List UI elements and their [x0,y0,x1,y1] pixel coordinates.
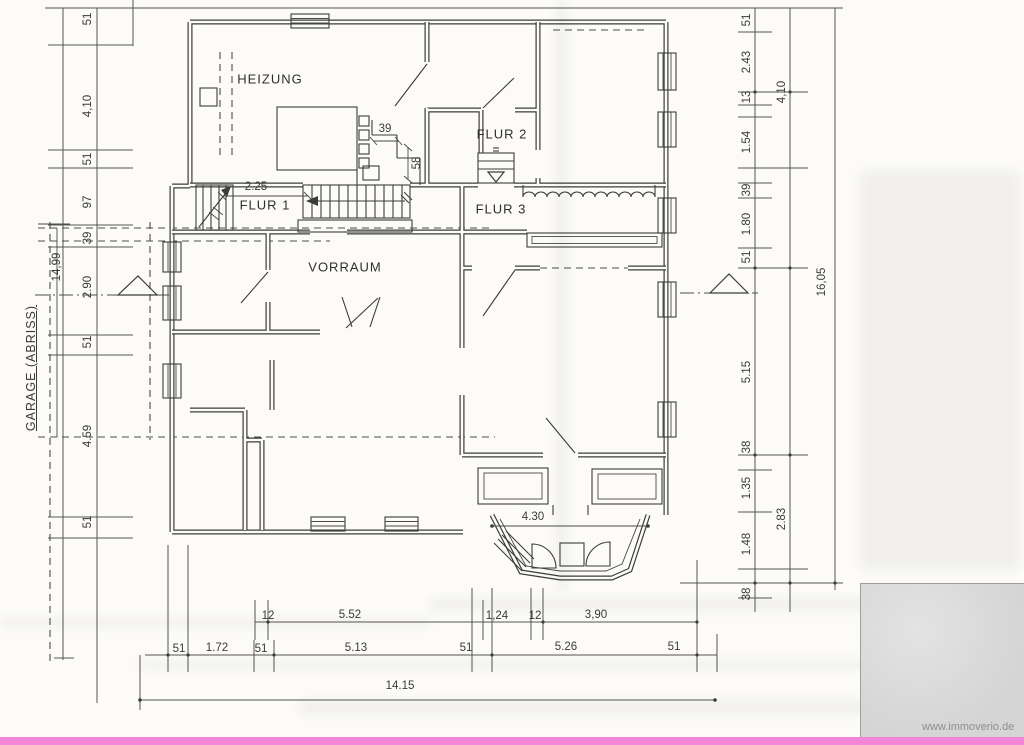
room-label-vorraum: VORRAUM [308,260,381,275]
garage-length-label: 14,99 [51,253,63,282]
dimension-label: 51 [460,642,473,654]
highlight-bar [0,737,1024,745]
dimension-label: 2.25 [245,181,267,193]
doors [241,64,575,453]
interior-walls [172,22,666,530]
flur-steps [478,148,514,183]
porch-bay [490,515,650,578]
dimension-label: 4.30 [522,511,544,523]
dimension-label: 51 [255,643,268,655]
dimension-label: 97 [82,196,94,209]
section-arrows [35,274,758,295]
dimension-label: 1,24 [486,610,508,622]
room-label-heizung: HEIZUNG [237,72,303,87]
dimension-label: 12 [529,610,542,622]
room-label-flur2: FLUR 2 [477,127,528,142]
door-swing-right [586,542,610,566]
scan-gray-patch [860,583,1024,738]
pilaster [200,88,217,106]
dimension-label: 2.83 [776,508,788,530]
scan-smudge [860,170,1020,570]
dimension-label: 4,10 [82,95,94,117]
left-arrow-icon [118,276,157,295]
dimension-label: 2.43 [741,51,753,73]
dimension-label: 13 [741,91,753,104]
dimension-label: 1.80 [741,213,753,235]
dimension-label: 4,10 [776,81,788,103]
dimension-label: 5.13 [345,642,367,654]
room-label-flur3: FLUR 3 [476,202,527,217]
dimension-label: 39 [82,232,94,245]
door-swing-left [532,544,556,568]
scanned-floorplan-page: HEIZUNG FLUR 1 FLUR 2 FLUR 3 VORRAUM GAR… [0,0,1024,745]
dimension-label: 51 [173,643,186,655]
dimension-label: 51 [668,641,681,653]
dimension-label: 2.90 [82,276,94,298]
scan-crease [556,0,568,590]
dimension-label: 38 [741,441,753,454]
main-staircase [298,185,412,232]
dimension-label: 39 [741,184,753,197]
dimension-label: 51 [82,153,94,166]
dimension-label: 5.15 [741,361,753,383]
garage-outline [38,222,495,662]
stairs [196,148,514,232]
dimension-label: 51 [82,13,94,26]
dimension-label: 1.54 [741,131,753,153]
dimension-label: 51 [741,14,753,27]
room-label-flur1: FLUR 1 [240,198,291,213]
garage-label: GARAGE (ABRISS) [24,305,38,431]
dimension-label: 51 [741,251,753,264]
watermark: www.immoverio.de [922,721,1014,733]
dimension-label: 4.59 [82,425,94,447]
dimension-label: 51 [82,516,94,529]
dimension-label: 1.35 [741,477,753,499]
scan-smudge [0,618,430,627]
right-arrow-icon [710,274,748,293]
dimension-label: 1.72 [206,642,228,654]
dimension-label: 39 [379,123,392,135]
dimension-label: 58 [411,157,423,170]
dimension-label: 16,05 [816,268,828,297]
dimension-label: 5.26 [555,641,577,653]
dimension-label: 51 [82,336,94,349]
boiler [277,107,357,170]
dimension-label: 1.48 [741,533,753,555]
dimension-label-total: 14.15 [386,680,415,692]
